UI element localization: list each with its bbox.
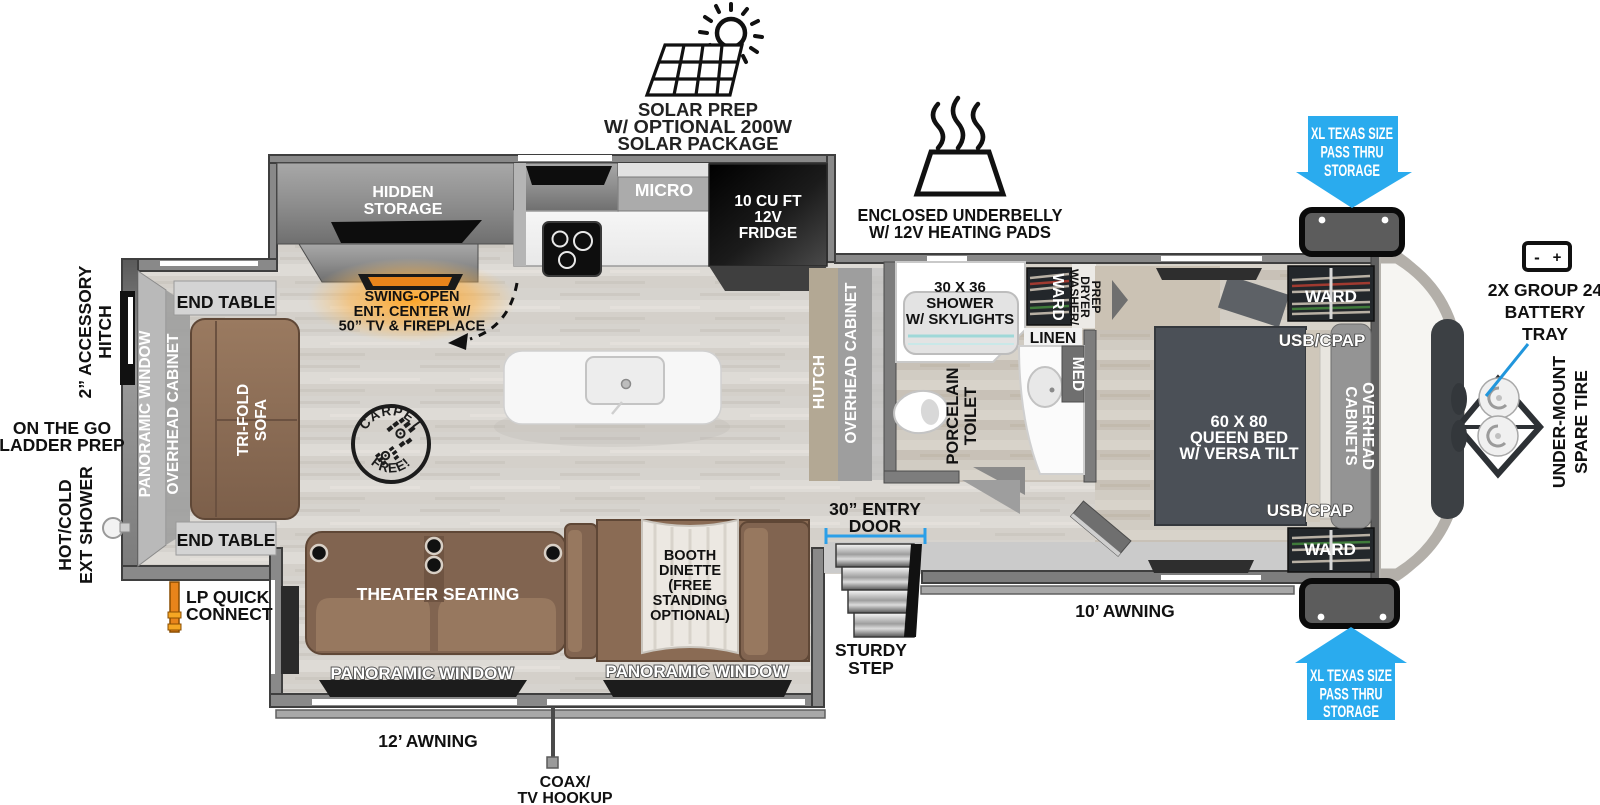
svg-text:UNDER-MOUNT: UNDER-MOUNT xyxy=(1549,356,1569,489)
svg-text:STORAGE: STORAGE xyxy=(1324,161,1380,180)
svg-text:SHOWER: SHOWER xyxy=(926,295,994,312)
svg-text:THEATER SEATING: THEATER SEATING xyxy=(357,584,520,604)
svg-text:END TABLE: END TABLE xyxy=(177,292,276,312)
svg-text:END TABLE: END TABLE xyxy=(177,530,276,550)
svg-text:W/ VERSA TILT: W/ VERSA TILT xyxy=(1179,445,1298,463)
svg-text:MED: MED xyxy=(1069,357,1086,391)
svg-text:HITCH: HITCH xyxy=(95,305,115,358)
svg-text:PASS THRU: PASS THRU xyxy=(1321,143,1384,162)
svg-text:FRIDGE: FRIDGE xyxy=(739,225,798,242)
svg-text:USB/CPAP: USB/CPAP xyxy=(1279,331,1366,350)
svg-text:XL TEXAS SIZE: XL TEXAS SIZE xyxy=(1310,666,1392,685)
svg-text:12V: 12V xyxy=(754,209,782,226)
svg-text:EXT SHOWER: EXT SHOWER xyxy=(76,466,96,584)
svg-text:10’ AWNING: 10’ AWNING xyxy=(1075,601,1175,621)
svg-text:CABINETS: CABINETS xyxy=(1342,386,1359,465)
svg-text:STORAGE: STORAGE xyxy=(1323,702,1379,721)
svg-text:TRAY: TRAY xyxy=(1522,324,1568,344)
svg-text:DINETTE: DINETTE xyxy=(659,563,721,579)
svg-text:(FREE: (FREE xyxy=(668,578,712,594)
svg-text:TRI-FOLD: TRI-FOLD xyxy=(235,384,252,456)
svg-text:PORCELAIN: PORCELAIN xyxy=(944,367,962,464)
svg-text:MICRO: MICRO xyxy=(635,180,693,200)
svg-text:PANORAMIC WINDOW: PANORAMIC WINDOW xyxy=(331,664,515,683)
svg-text:WARD: WARD xyxy=(1305,287,1357,306)
svg-text:30 X 36: 30 X 36 xyxy=(934,279,986,296)
svg-text:STANDING: STANDING xyxy=(653,593,728,609)
svg-text:STORAGE: STORAGE xyxy=(364,201,443,218)
svg-text:SOLAR PACKAGE: SOLAR PACKAGE xyxy=(618,134,779,154)
svg-text:COAX/: COAX/ xyxy=(540,774,591,791)
svg-text:2X GROUP 24: 2X GROUP 24 xyxy=(1488,280,1600,300)
svg-text:TOILET: TOILET xyxy=(962,387,980,445)
svg-text:OVERHEAD: OVERHEAD xyxy=(1359,382,1376,470)
svg-text:LINEN: LINEN xyxy=(1030,330,1077,347)
svg-text:50” TV & FIREPLACE: 50” TV & FIREPLACE xyxy=(339,319,486,335)
svg-text:12’ AWNING: 12’ AWNING xyxy=(378,731,478,751)
svg-text:2” ACCESSORY: 2” ACCESSORY xyxy=(75,265,95,398)
svg-text:-: - xyxy=(1534,248,1540,267)
svg-text:XL TEXAS SIZE: XL TEXAS SIZE xyxy=(1311,124,1393,143)
svg-text:HUTCH: HUTCH xyxy=(811,355,828,409)
svg-text:HOT/COLD: HOT/COLD xyxy=(55,479,75,570)
svg-text:HIDDEN: HIDDEN xyxy=(372,184,433,201)
svg-text:SWING-OPEN: SWING-OPEN xyxy=(364,289,459,305)
svg-text:PANORAMIC WINDOW: PANORAMIC WINDOW xyxy=(606,662,790,681)
svg-text:DOOR: DOOR xyxy=(849,516,902,536)
svg-text:PASS THRU: PASS THRU xyxy=(1320,685,1383,704)
svg-text:W/ SKYLIGHTS: W/ SKYLIGHTS xyxy=(906,311,1014,328)
svg-text:BATTERY: BATTERY xyxy=(1505,302,1586,322)
svg-text:OVERHEAD CABINET: OVERHEAD CABINET xyxy=(165,333,182,495)
svg-text:+: + xyxy=(1553,249,1562,266)
svg-text:USB/CPAP: USB/CPAP xyxy=(1267,501,1354,520)
svg-text:STEP: STEP xyxy=(848,658,894,678)
svg-text:WARD: WARD xyxy=(1304,540,1356,559)
svg-text:STURDY: STURDY xyxy=(835,640,907,660)
svg-text:BOOTH: BOOTH xyxy=(664,548,716,564)
svg-text:LADDER PREP: LADDER PREP xyxy=(0,435,125,455)
svg-text:OPTIONAL): OPTIONAL) xyxy=(650,608,730,624)
svg-text:CONNECT: CONNECT xyxy=(186,604,273,624)
svg-text:WARD: WARD xyxy=(1049,273,1066,320)
svg-text:PREP: PREP xyxy=(1089,281,1103,314)
svg-text:10 CU FT: 10 CU FT xyxy=(734,193,802,210)
svg-text:TV HOOKUP: TV HOOKUP xyxy=(517,790,612,805)
svg-text:PANORAMIC WINDOW: PANORAMIC WINDOW xyxy=(137,330,154,497)
svg-text:SPARE TIRE: SPARE TIRE xyxy=(1571,370,1591,474)
svg-text:W/ 12V HEATING PADS: W/ 12V HEATING PADS xyxy=(869,222,1051,242)
svg-text:OVERHEAD CABINET: OVERHEAD CABINET xyxy=(843,282,860,444)
svg-text:SOFA: SOFA xyxy=(253,399,270,441)
